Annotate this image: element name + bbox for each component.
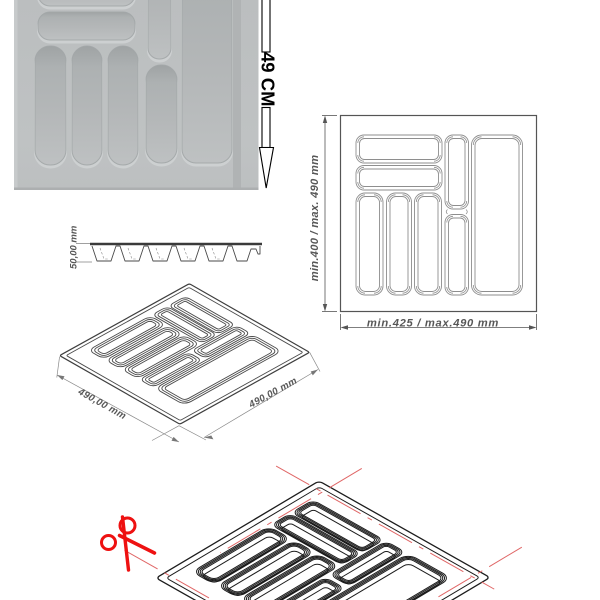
svg-text:min.400 / max. 490 mm: min.400 / max. 490 mm xyxy=(309,155,321,282)
svg-text:490,00 mm: 490,00 mm xyxy=(246,375,299,411)
svg-text:490,00 mm: 490,00 mm xyxy=(75,386,128,422)
svg-text:49 CM: 49 CM xyxy=(258,52,279,107)
svg-text:50,00 mm: 50,00 mm xyxy=(69,225,80,269)
svg-text:min.425 / max.490 mm: min.425 / max.490 mm xyxy=(367,318,499,330)
